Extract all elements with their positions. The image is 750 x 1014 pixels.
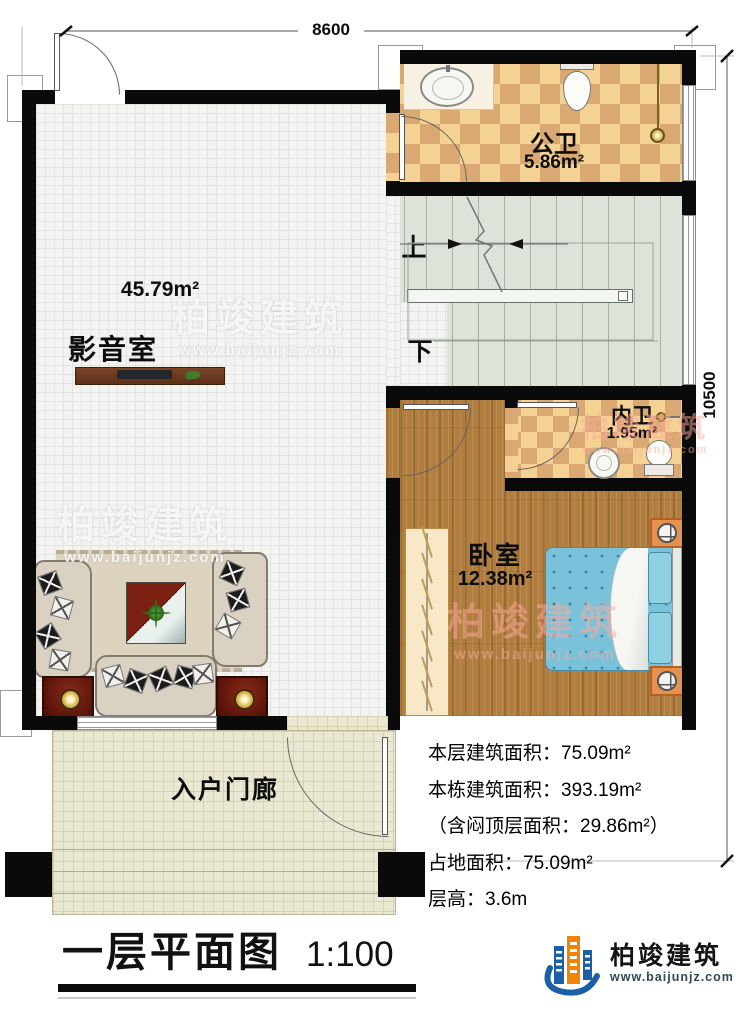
side-table (216, 676, 268, 718)
wall (22, 90, 36, 730)
nightstand (650, 666, 684, 696)
nightstand (650, 518, 684, 548)
info-line: 本层建筑面积：75.09m² (428, 736, 730, 773)
wall (386, 104, 400, 113)
brand-website: www.baijunjz.com (610, 970, 734, 984)
door-opening-floor (386, 408, 400, 478)
room-area-bedroom: 12.38m² (435, 568, 555, 591)
wall (386, 478, 400, 716)
wall (400, 50, 696, 64)
plan-title-text: 一层平面图 (62, 918, 282, 978)
porch-pillar (5, 852, 52, 897)
info-line: 本栋建筑面积：393.19m² (428, 773, 730, 810)
headboard (672, 547, 682, 671)
wall (386, 181, 400, 196)
ceiling-lamp-icon (657, 523, 677, 543)
shower-head-icon (650, 128, 665, 143)
brand-name: 柏竣建筑 (610, 942, 734, 971)
door-opening-floor (386, 113, 400, 181)
title-underline-thin (58, 997, 416, 999)
wall (217, 716, 287, 730)
building-info: 本层建筑面积：75.09m² 本栋建筑面积：393.19m² （含闷顶层面积：2… (428, 736, 730, 919)
wall (386, 386, 696, 400)
room-label-media: 影音室 (48, 328, 178, 368)
tv-icon (117, 370, 172, 379)
plan-scale: 1:100 (306, 935, 394, 975)
wall (22, 716, 77, 730)
stairs-opening-floor (386, 196, 400, 386)
room-area-media: 45.79m² (105, 278, 215, 302)
window (682, 85, 696, 181)
entry-door-arc (58, 33, 120, 95)
toilet-icon (646, 440, 672, 466)
dimension-height-label: 10500 (700, 350, 720, 440)
door-opening-floor (287, 716, 388, 730)
room-label-bedroom: 卧室 (440, 536, 550, 572)
dimension-width-label: 8600 (298, 20, 364, 40)
porch-step-line (53, 849, 395, 850)
toilet-tank (644, 464, 674, 476)
window (77, 716, 217, 730)
porch-step-line (53, 893, 395, 894)
sink-icon (420, 67, 474, 107)
floor-plan: 公卫 5.86m² 45.79m² 影音室 上 下 内卫 1.95m² 卧室 1… (0, 0, 750, 1014)
pillow (192, 663, 215, 686)
shower-hose (657, 62, 659, 130)
stairs-down-label: 下 (402, 332, 438, 368)
info-line: 层高：3.6m (428, 882, 730, 919)
bed-sheet (610, 548, 648, 670)
room-area-public-bath: 5.86m² (508, 152, 600, 174)
stair-handrail-cap (618, 291, 628, 301)
room-label-porch: 入户门廊 (130, 770, 320, 806)
info-line: （含闷顶层面积：29.86m²） (428, 809, 730, 846)
side-table (42, 676, 94, 718)
room-area-inner-bath: 1.95m² (592, 425, 672, 443)
wall (505, 478, 682, 491)
lamp-icon (60, 689, 81, 710)
title-underline (58, 984, 416, 992)
brand-logo-icon (540, 930, 602, 996)
lamp-icon (234, 689, 255, 710)
sink-icon (588, 447, 620, 479)
brand-logo: 柏竣建筑 www.baijunjz.com (540, 930, 734, 996)
wall (400, 182, 682, 196)
bed-pillow (648, 552, 672, 604)
coffee-table (126, 582, 186, 644)
pillow (48, 648, 71, 671)
ceiling-lamp-icon (657, 671, 677, 691)
wall (388, 716, 400, 730)
stairs-up-label: 上 (396, 228, 432, 264)
stair-handrail (407, 289, 633, 303)
porch-step-line (53, 871, 395, 872)
wall (386, 400, 400, 408)
wall (125, 90, 400, 104)
bed-pillow (648, 612, 672, 664)
info-line: 占地面积：75.09m² (428, 846, 730, 883)
porch-pillar (378, 852, 425, 897)
plan-title: 一层平面图 1:100 (62, 918, 394, 978)
window (682, 215, 696, 385)
